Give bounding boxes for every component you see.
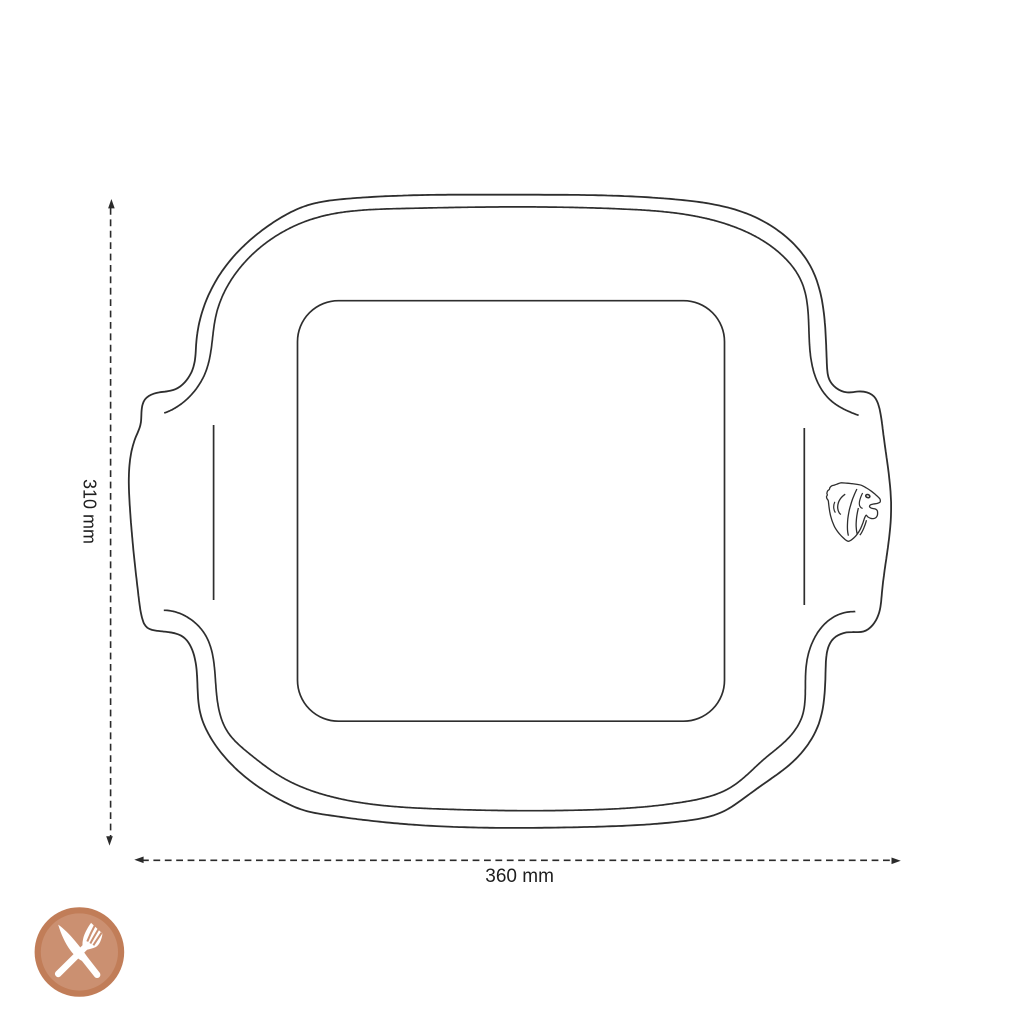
svg-text:310 mm: 310 mm bbox=[80, 479, 100, 544]
svg-text:360 mm: 360 mm bbox=[485, 866, 554, 887]
